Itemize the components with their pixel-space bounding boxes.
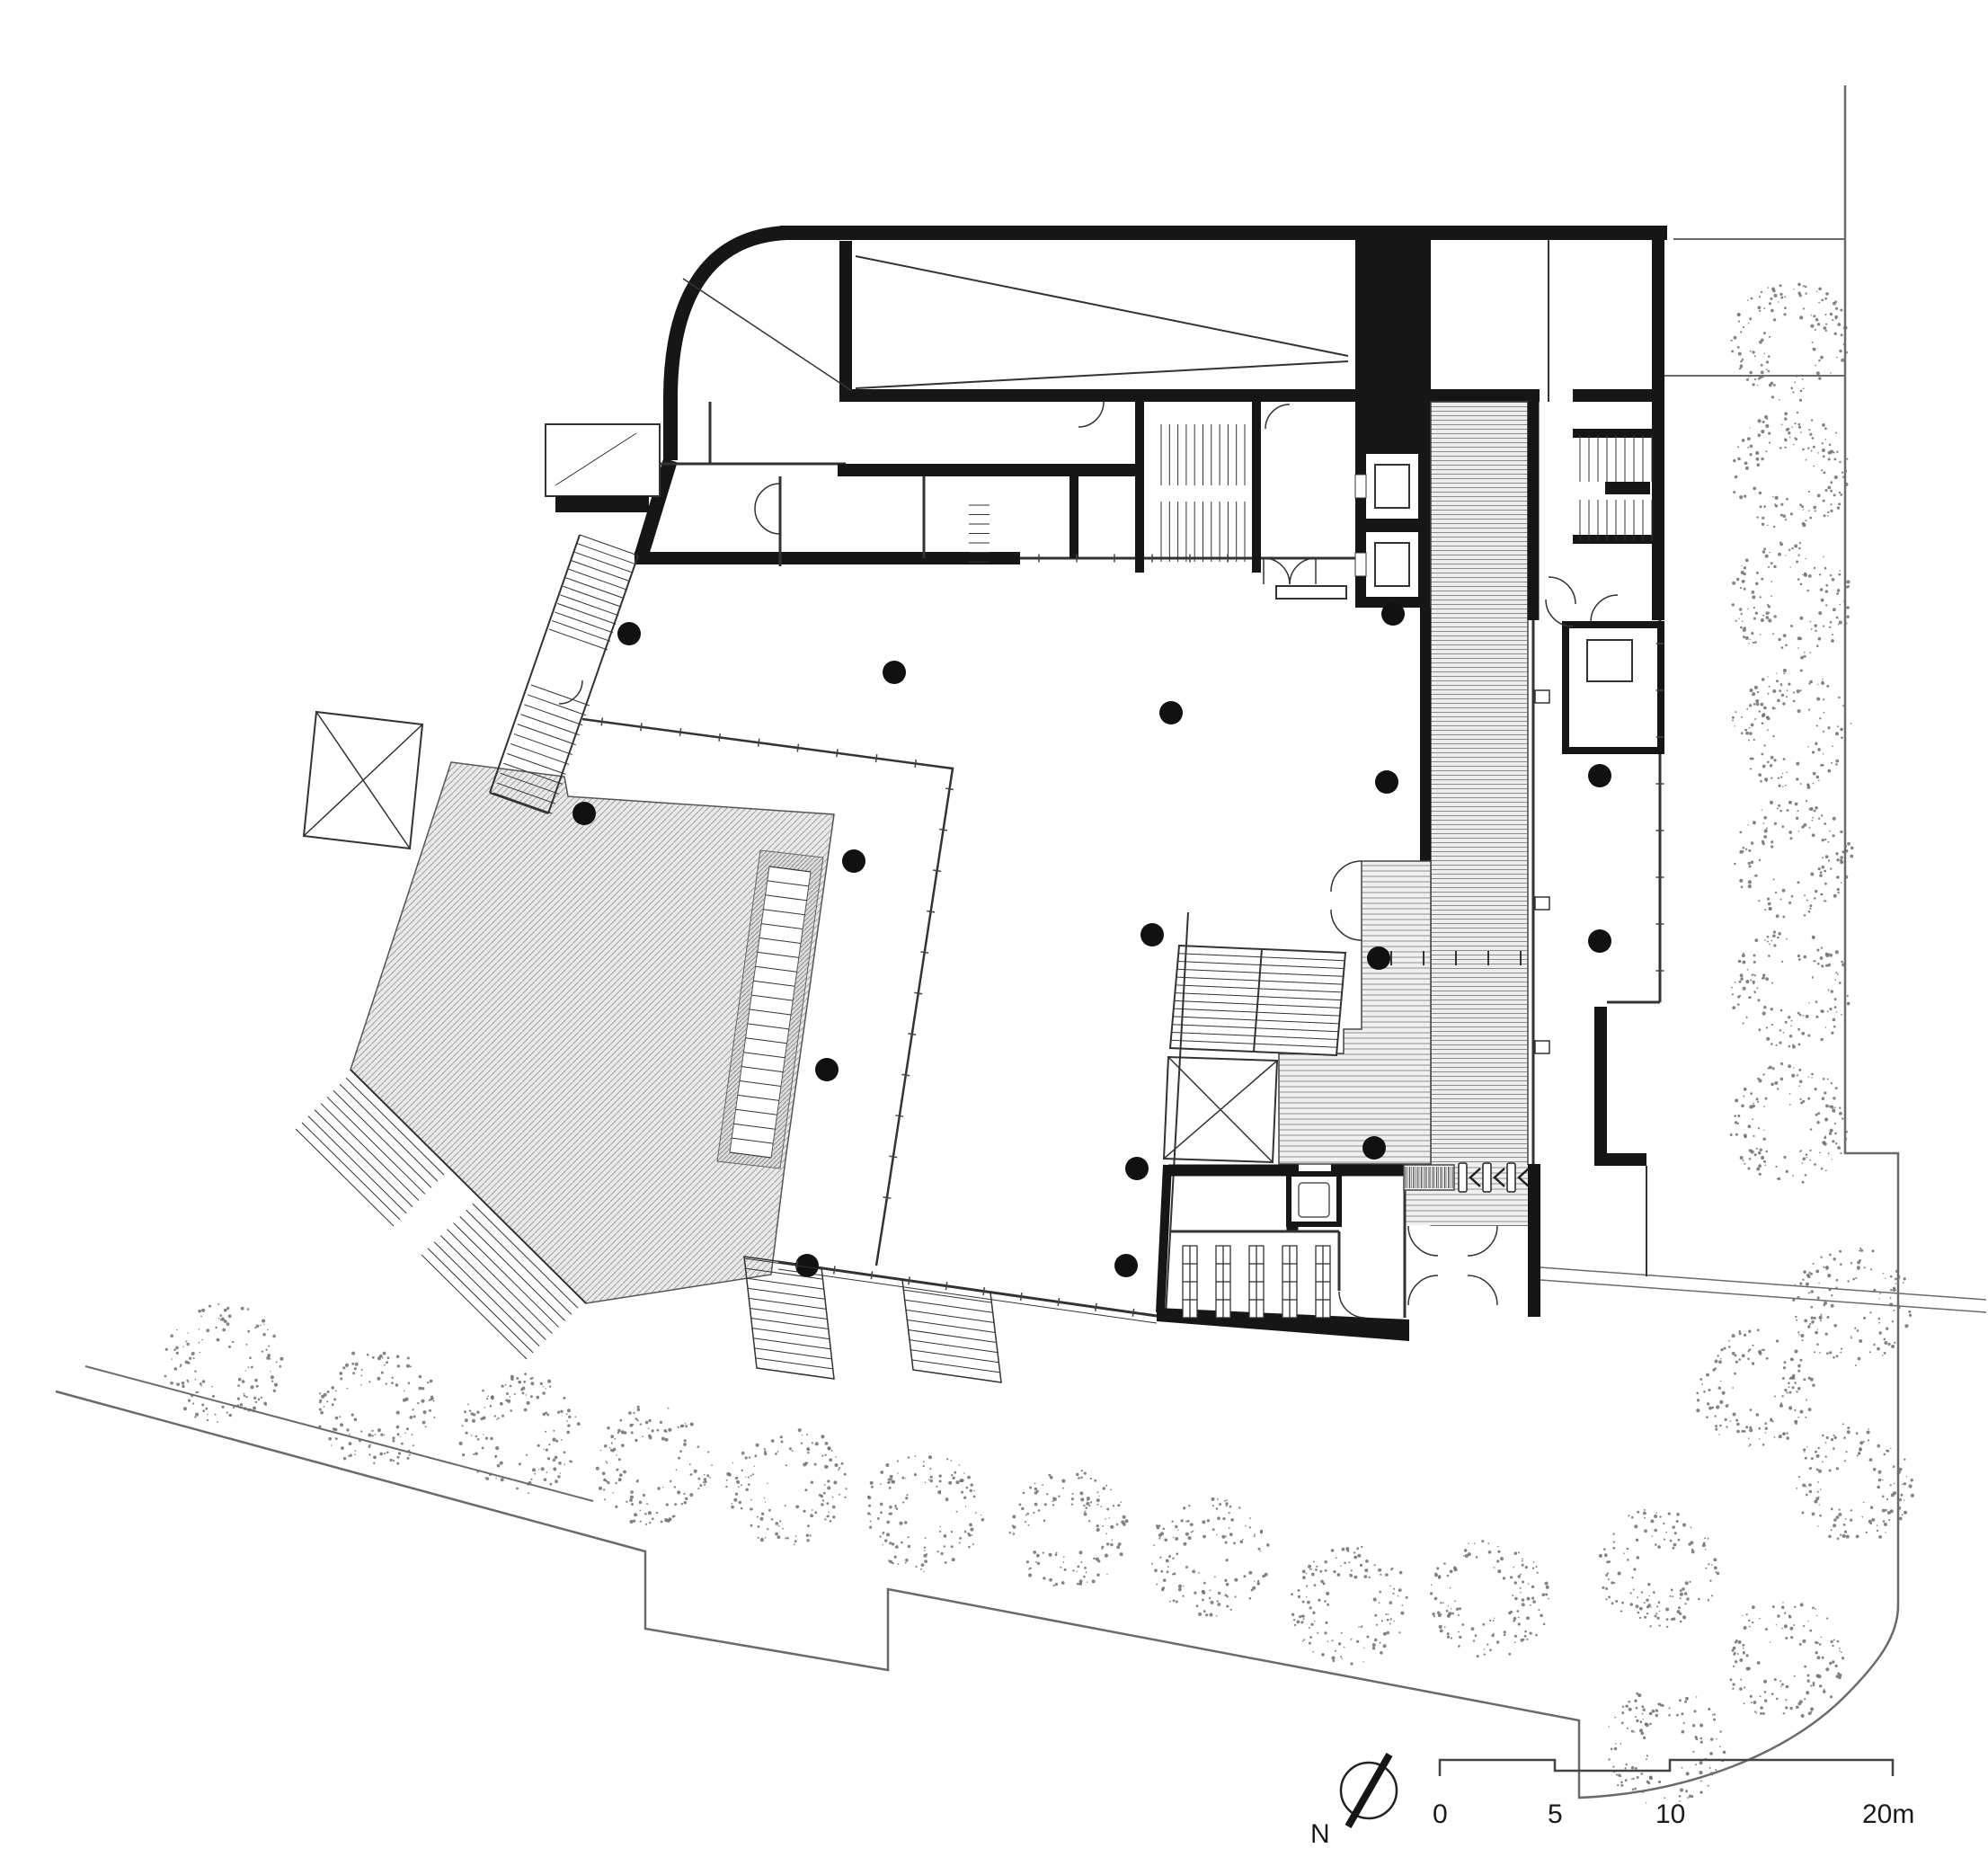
tree-icon	[1009, 1470, 1129, 1586]
tree-icon	[1731, 930, 1850, 1048]
sidewalk-edge	[85, 1366, 593, 1501]
tree-icon	[318, 1352, 435, 1465]
turnstile-bar-icon	[1507, 1163, 1515, 1192]
tree-icon	[1430, 1540, 1549, 1657]
column-dot	[842, 849, 865, 873]
column-dot	[815, 1058, 839, 1081]
tree-icon	[1733, 412, 1848, 529]
tree-icon	[1732, 669, 1852, 789]
scale-bar: 0 5 10 20m	[1433, 1760, 1914, 1829]
column-dot	[617, 622, 641, 645]
plaza-skylight-xbox	[304, 712, 422, 849]
shelving-racks	[1183, 1246, 1330, 1318]
floor-plan-page: N 0 5 10 20m	[0, 0, 1988, 1866]
map-legend: N 0 5 10 20m	[1310, 1755, 1914, 1849]
tree-icon	[1731, 283, 1848, 402]
turnstile-bar-icon	[1459, 1163, 1467, 1192]
tree-icon	[596, 1406, 713, 1525]
tree-icon	[1730, 1602, 1845, 1718]
tree-icon	[1599, 1509, 1719, 1628]
column-dot	[1381, 602, 1405, 626]
scale-label-20m: 20m	[1862, 1799, 1914, 1829]
ramp-slope-lines	[856, 256, 1348, 388]
tree-icon	[725, 1428, 847, 1545]
tree-icon	[1151, 1497, 1270, 1617]
tree-icon	[1730, 1062, 1848, 1184]
column-dot	[1140, 923, 1164, 946]
curved-corner-wall	[670, 233, 786, 460]
property-line-right	[1845, 85, 1898, 1605]
column-dot	[1159, 701, 1183, 724]
bench-icon	[1535, 897, 1549, 910]
shelving-rack	[1183, 1246, 1197, 1318]
tree-icon	[1732, 541, 1850, 659]
shelving-rack	[1282, 1246, 1297, 1318]
column-dot	[1367, 946, 1390, 970]
column-dot	[1375, 770, 1398, 794]
elevator-door-icon	[1355, 475, 1366, 498]
tree-icon	[458, 1373, 580, 1494]
shelving-rack	[1316, 1246, 1330, 1318]
column-dot	[1125, 1157, 1149, 1180]
scale-label-5: 5	[1548, 1799, 1563, 1829]
north-arrow-icon: N	[1310, 1755, 1397, 1849]
stair-treads	[902, 1280, 1001, 1382]
glazing-ticks	[601, 717, 916, 767]
tree-icon	[1696, 1328, 1815, 1446]
shelving-rack	[1216, 1246, 1230, 1318]
small-elevator-room	[1566, 625, 1661, 751]
tree-icon	[1734, 800, 1854, 918]
tree-icon	[1792, 1248, 1912, 1366]
glazing-ticks	[883, 788, 953, 1198]
entry-ramp-strip	[1425, 402, 1549, 1225]
site-lines	[56, 85, 1986, 1798]
column-dot	[883, 661, 906, 684]
shelving-rack	[1249, 1246, 1264, 1318]
stair-treads	[1161, 424, 1245, 485]
scale-label-10: 10	[1655, 1799, 1685, 1829]
sw-facade	[744, 1257, 1409, 1382]
column-dot	[1114, 1254, 1138, 1277]
bench-icon	[1535, 690, 1549, 703]
cloakroom-block	[1160, 1165, 1407, 1318]
reception-desk	[1276, 586, 1346, 599]
stair-treads	[1580, 435, 1652, 482]
terrace-plaza	[304, 712, 834, 1303]
column-dot	[1362, 1136, 1386, 1160]
stair-treads	[1161, 502, 1245, 562]
tree-icon	[1796, 1423, 1914, 1540]
bench-icon	[1535, 1041, 1549, 1053]
tree-icon	[164, 1303, 284, 1423]
column-dot	[572, 802, 596, 825]
column-dot	[1588, 929, 1611, 953]
elevator-door-icon	[1355, 553, 1366, 576]
ramp-edge-line	[683, 279, 852, 391]
nw-vestibule	[546, 424, 660, 496]
tree-icon	[1291, 1546, 1408, 1666]
porch-edge-line-1	[1540, 1267, 1986, 1300]
street-curb	[56, 1391, 1898, 1798]
scale-label-0: 0	[1433, 1799, 1448, 1829]
column-dot	[1588, 764, 1611, 787]
shaft-xbox	[1164, 1057, 1277, 1162]
porch-edge-line-2	[1540, 1280, 1986, 1312]
floor-plan-drawing: N 0 5 10 20m	[0, 0, 1988, 1866]
tree-icon	[867, 1455, 984, 1572]
turnstile-bar-icon	[1483, 1163, 1491, 1192]
north-label: N	[1310, 1819, 1330, 1849]
